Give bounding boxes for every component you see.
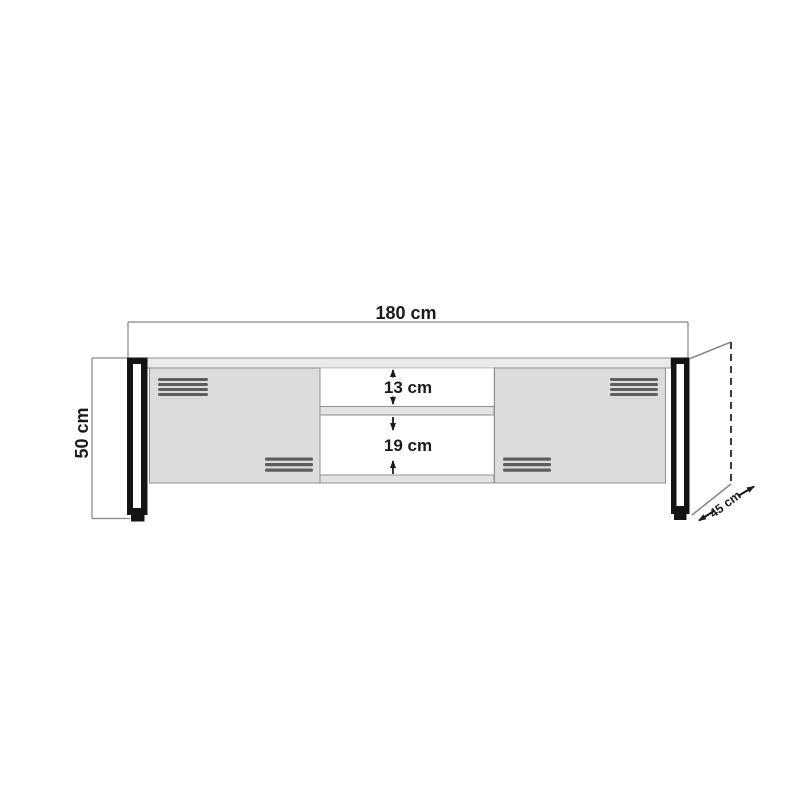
vent-bar bbox=[610, 388, 658, 391]
width-dimension-label: 180 cm bbox=[375, 303, 436, 323]
vent-bar bbox=[158, 388, 208, 391]
vent-bar bbox=[610, 393, 658, 396]
right-leg-foot bbox=[674, 514, 687, 520]
depth-arrow-upper bbox=[738, 487, 754, 497]
vent-bar bbox=[265, 458, 313, 461]
vent-bar bbox=[503, 469, 551, 472]
vent-bar bbox=[610, 383, 658, 386]
width-dimension: 180 cm bbox=[128, 303, 688, 358]
vent-bar bbox=[265, 469, 313, 472]
top-panel bbox=[147, 358, 671, 368]
vent-bar bbox=[610, 378, 658, 381]
depth-dimension-label: 45 cm bbox=[707, 488, 744, 521]
lower-opening-label: 19 cm bbox=[384, 436, 432, 455]
vent-bar bbox=[503, 463, 551, 466]
right-leg bbox=[671, 358, 690, 521]
tv-stand-body bbox=[147, 358, 671, 483]
upper-opening-label: 13 cm bbox=[384, 378, 432, 397]
vent-grille-left-door-bottom bbox=[265, 458, 313, 472]
perspective-top-edge bbox=[689, 342, 731, 359]
vent-bar bbox=[158, 393, 208, 396]
vent-grille-right-door-bottom bbox=[503, 458, 551, 472]
middle-shelf bbox=[320, 407, 494, 416]
height-dimension-label: 50 cm bbox=[72, 407, 92, 458]
right-leg-slot bbox=[677, 364, 685, 506]
technical-drawing-svg: 180 cm 50 cm bbox=[0, 0, 800, 800]
height-dimension: 50 cm bbox=[72, 358, 130, 519]
left-leg-foot bbox=[131, 515, 145, 522]
perspective-depth bbox=[689, 342, 731, 515]
vent-bar bbox=[503, 458, 551, 461]
width-dimension-lines bbox=[128, 322, 688, 358]
vent-bar bbox=[265, 463, 313, 466]
vent-bar bbox=[158, 378, 208, 381]
furniture-diagram: 180 cm 50 cm bbox=[0, 0, 800, 800]
bottom-panel bbox=[320, 475, 494, 483]
left-leg bbox=[127, 358, 148, 522]
height-dimension-lines bbox=[92, 358, 130, 519]
vent-bar bbox=[158, 383, 208, 386]
left-leg-slot bbox=[133, 364, 141, 508]
